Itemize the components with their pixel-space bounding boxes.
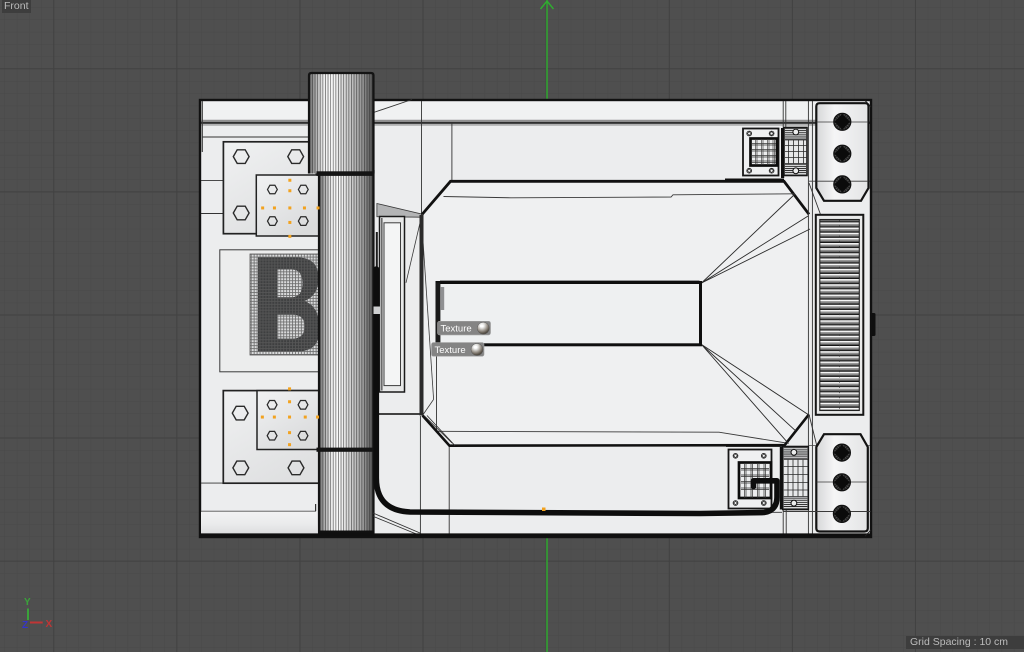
svg-text:Z: Z [22,620,28,631]
svg-text:Texture: Texture [435,345,466,356]
svg-text:Texture: Texture [441,324,472,335]
svg-text:X: X [46,619,53,630]
svg-text:Y: Y [24,597,31,608]
